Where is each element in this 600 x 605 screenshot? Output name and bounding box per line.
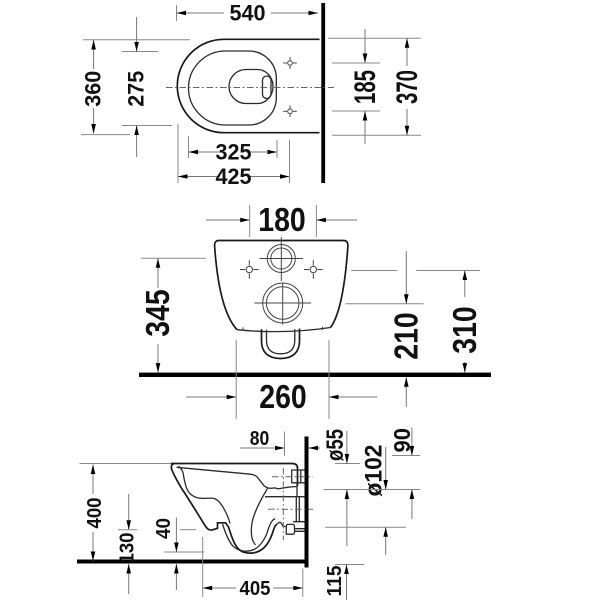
svg-text:40: 40 bbox=[153, 518, 175, 539]
svg-text:370: 370 bbox=[391, 70, 424, 104]
svg-text:425: 425 bbox=[216, 164, 252, 189]
svg-text:540: 540 bbox=[230, 1, 266, 26]
svg-text:210: 210 bbox=[387, 312, 424, 360]
svg-text:185: 185 bbox=[349, 70, 382, 104]
svg-text:180: 180 bbox=[258, 201, 306, 238]
svg-text:80: 80 bbox=[250, 428, 270, 450]
svg-text:115: 115 bbox=[324, 566, 346, 597]
svg-text:405: 405 bbox=[240, 578, 271, 600]
svg-text:275: 275 bbox=[124, 71, 149, 107]
svg-text:90: 90 bbox=[389, 428, 415, 453]
svg-text:325: 325 bbox=[216, 140, 252, 165]
svg-text:ø102: ø102 bbox=[361, 445, 388, 497]
svg-text:310: 310 bbox=[446, 306, 483, 354]
svg-text:130: 130 bbox=[117, 533, 139, 564]
svg-text:ø55: ø55 bbox=[322, 429, 349, 461]
svg-text:260: 260 bbox=[259, 378, 307, 415]
svg-text:360: 360 bbox=[81, 71, 106, 107]
svg-text:345: 345 bbox=[139, 289, 176, 337]
svg-text:400: 400 bbox=[84, 498, 106, 529]
